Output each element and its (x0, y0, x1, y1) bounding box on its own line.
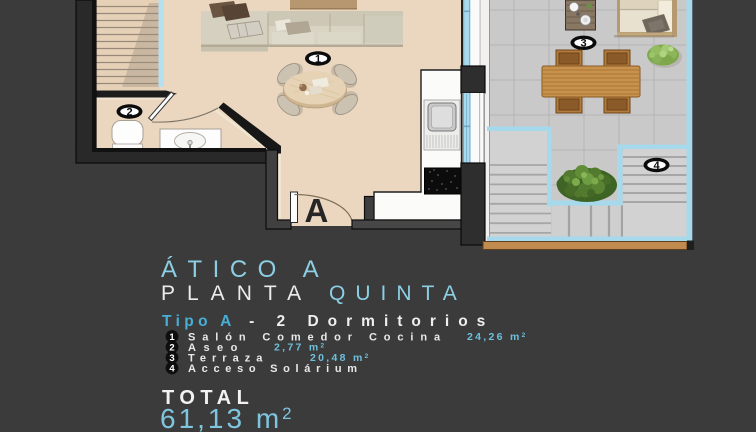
svg-text:2: 2 (126, 106, 132, 118)
svg-text:24,26 m2: 24,26 m2 (467, 331, 528, 343)
svg-text:1: 1 (315, 53, 321, 65)
svg-text:4: 4 (169, 364, 175, 375)
svg-text:A: A (305, 192, 329, 229)
svg-text:Acceso Solárium: Acceso Solárium (188, 363, 363, 375)
svg-text:3: 3 (580, 38, 586, 50)
svg-text:QUINTA: QUINTA (329, 282, 467, 305)
svg-text:4: 4 (653, 160, 660, 172)
svg-text:ÁTICO A: ÁTICO A (161, 256, 329, 283)
svg-text:PLANTA: PLANTA (161, 282, 313, 305)
svg-text:61,13 m2: 61,13 m2 (160, 403, 295, 432)
svg-text:Tipo A - 2 Dormitorios: Tipo A - 2 Dormitorios (162, 313, 494, 330)
